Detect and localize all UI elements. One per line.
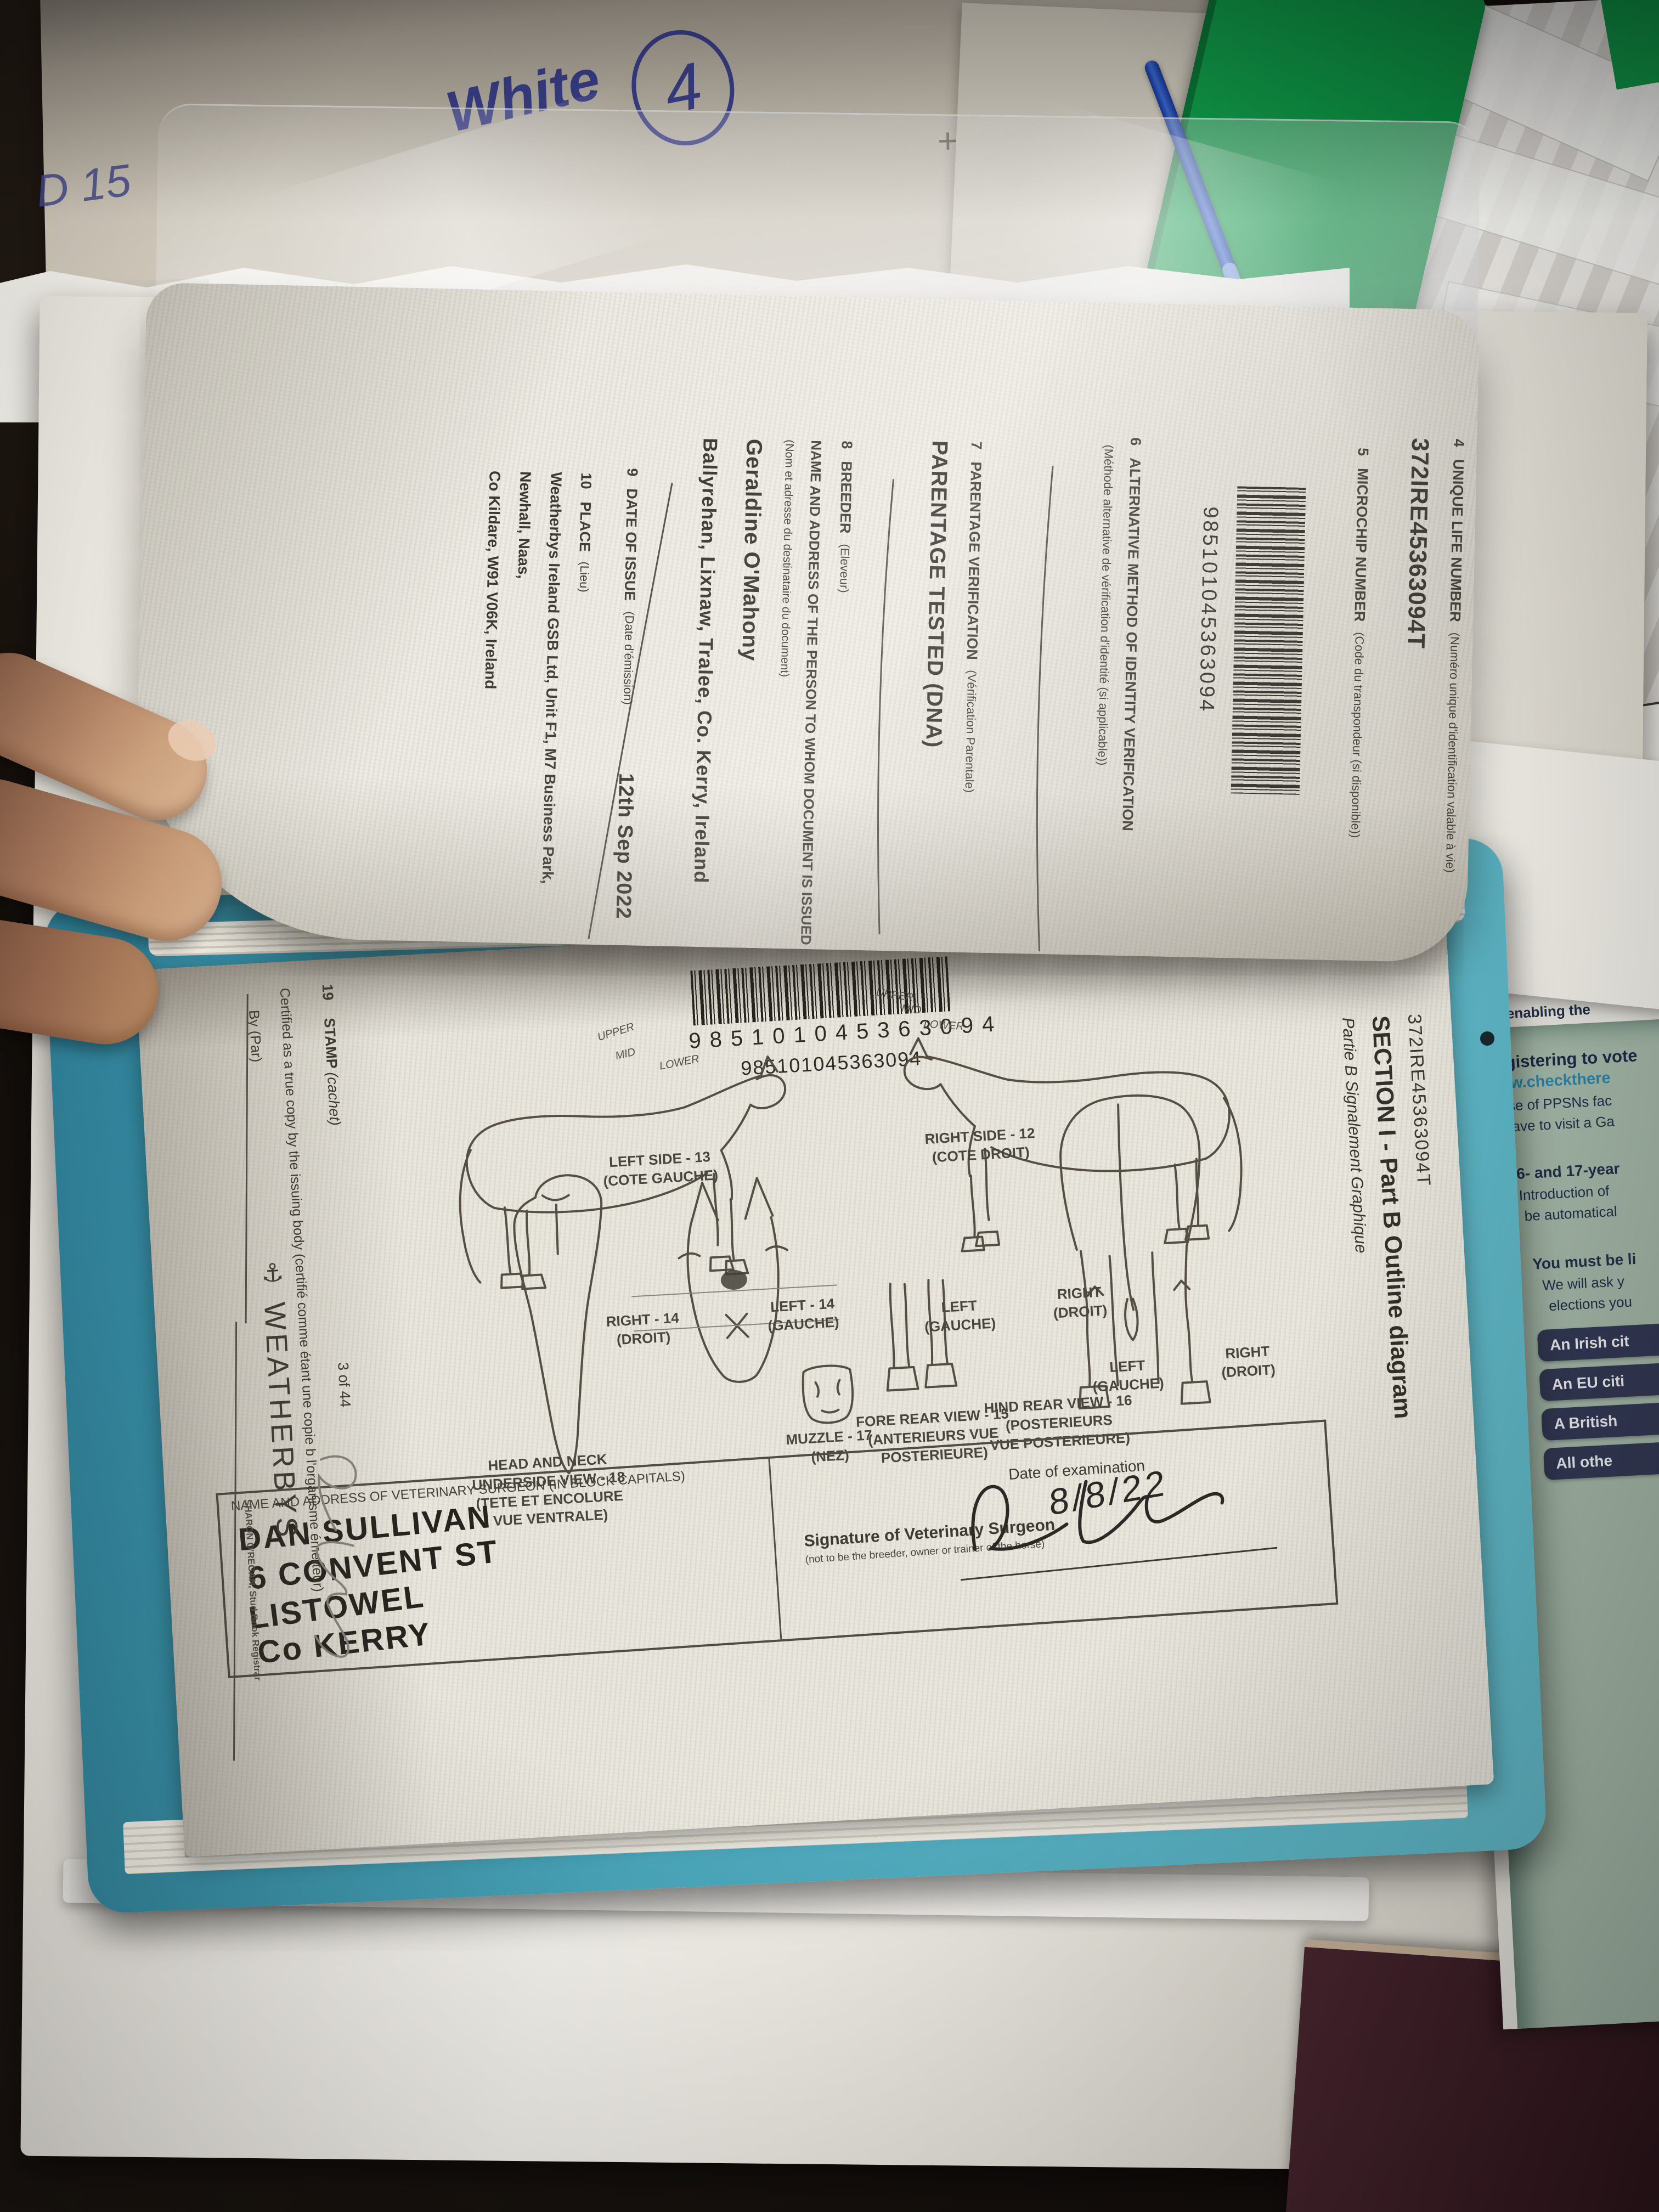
label-right-side: RIGHT SIDE - 12 (COTE DROIT) xyxy=(911,1124,1049,1168)
muzzle-outline xyxy=(802,1364,854,1424)
label-text: RIGHT xyxy=(1057,1284,1102,1302)
label-head-right: RIGHT - 14 (DROIT) xyxy=(594,1308,692,1350)
head-front-outline xyxy=(625,1174,842,1388)
page-curve-shading xyxy=(133,283,1480,963)
label-rear-left: LEFT (GAUCHE) xyxy=(923,1296,996,1337)
label-text: LEFT xyxy=(941,1297,978,1316)
handwritten-fragment: D 15 xyxy=(33,155,134,218)
flipped-page: 4 UNIQUE LIFE NUMBER (Numéro unique d'id… xyxy=(133,283,1480,963)
label-rear-right: RIGHT (DROIT) xyxy=(1043,1282,1116,1323)
label-text: LEFT - 14 xyxy=(770,1295,835,1315)
diagram-page: 372IRE45363094T SECTION I - Part B Outli… xyxy=(136,897,1494,1858)
label-text-fr: (GAUCHE) xyxy=(1092,1374,1165,1396)
cover-hole xyxy=(1480,1031,1494,1046)
label-hind-left: LEFT (GAUCHE) xyxy=(1091,1356,1165,1397)
label-text: RIGHT xyxy=(1224,1343,1269,1362)
label-text: LEFT xyxy=(1109,1357,1145,1375)
label-text-fr: (DROIT) xyxy=(1044,1301,1116,1323)
label-hind-right: RIGHT (DROIT) xyxy=(1211,1341,1285,1383)
page-shadow-overlay xyxy=(136,956,437,1857)
label-text: HIND REAR VIEW - 16 (POSTERIEURS xyxy=(984,1392,1132,1434)
zone-lower: LOWER xyxy=(923,1018,964,1033)
desk-photo-scene: White 4 D 15 + 5 LG registe well as enab… xyxy=(0,0,1659,2212)
label-text-fr: (DROIT) xyxy=(1212,1360,1285,1383)
label-left-side: LEFT SIDE - 13 (COTE GAUCHE) xyxy=(596,1147,724,1191)
vet-box-divider xyxy=(768,1459,782,1639)
label-head-left: LEFT - 14 (GAUCHE) xyxy=(753,1294,853,1336)
label-text-fr: (GAUCHE) xyxy=(924,1314,996,1336)
label-text: RIGHT - 14 xyxy=(606,1310,679,1330)
